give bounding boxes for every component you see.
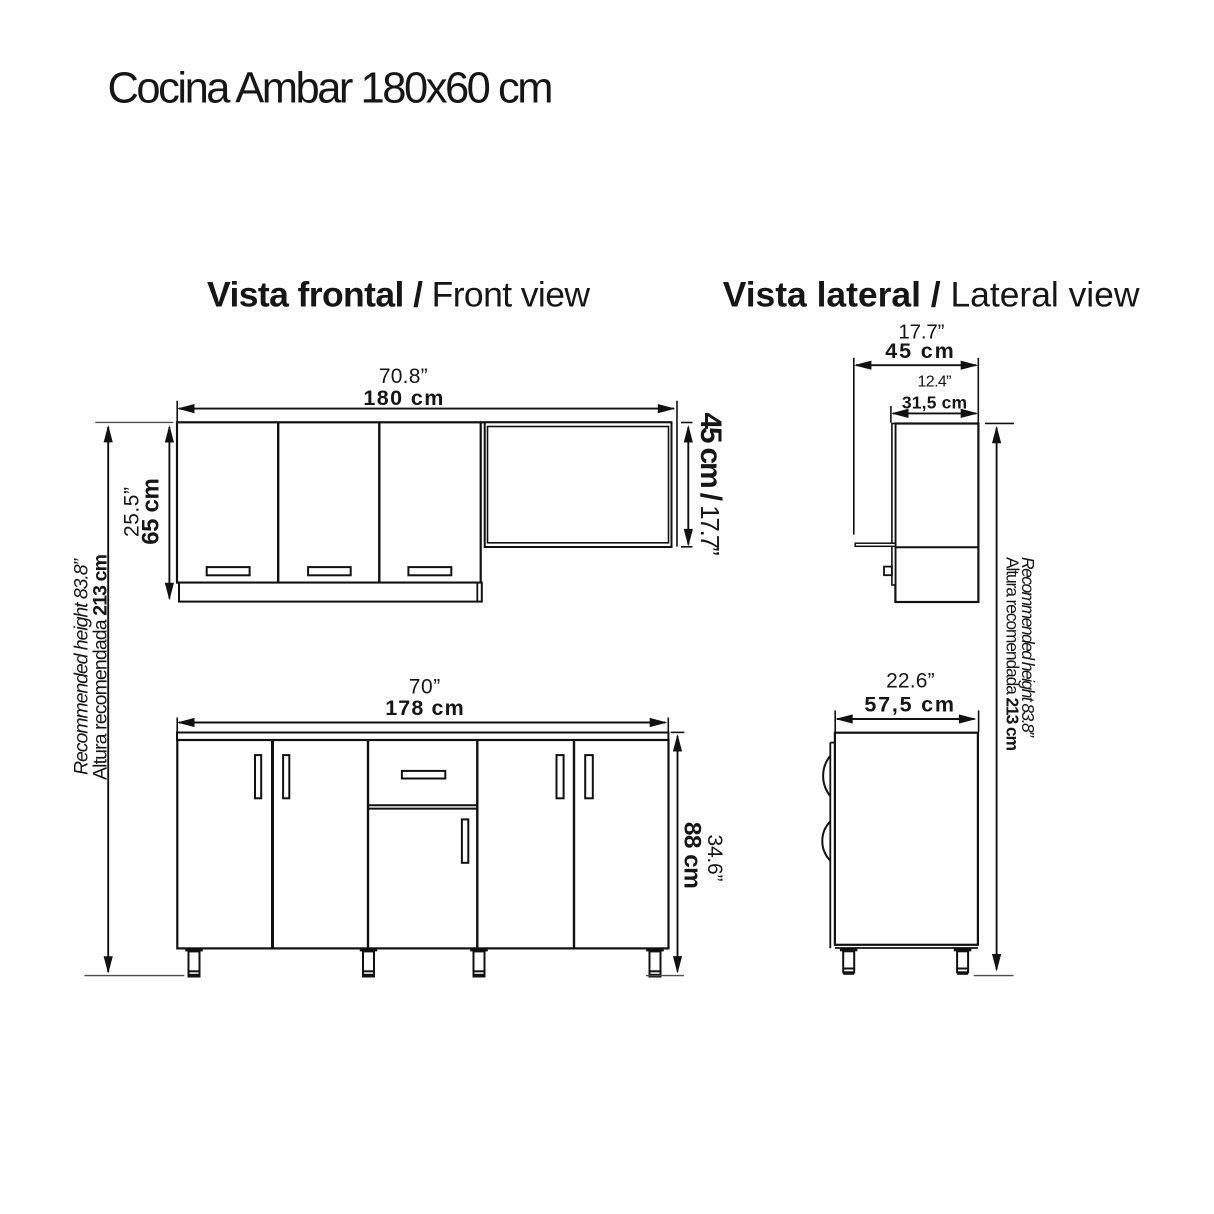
svg-text:Altura recomendada 213 cm: Altura recomendada 213 cm bbox=[1003, 557, 1023, 751]
svg-text:45 cm / 17.7”: 45 cm / 17.7” bbox=[694, 412, 727, 555]
svg-text:Altura recomendada 213 cm: Altura recomendada 213 cm bbox=[90, 554, 112, 780]
svg-text:Vista lateral / Lateral view: Vista lateral / Lateral view bbox=[723, 275, 1140, 315]
svg-text:88 cm: 88 cm bbox=[679, 822, 706, 889]
svg-text:22.6”: 22.6” bbox=[886, 670, 935, 693]
svg-text:70”: 70” bbox=[409, 675, 441, 698]
svg-text:Cocina Ambar 180x60 cm: Cocina Ambar 180x60 cm bbox=[108, 65, 554, 113]
svg-text:65 cm: 65 cm bbox=[138, 478, 165, 545]
svg-text:70.8”: 70.8” bbox=[379, 365, 428, 388]
svg-text:Vista frontal / Front view: Vista frontal / Front view bbox=[207, 275, 590, 315]
svg-text:31,5 cm: 31,5 cm bbox=[902, 392, 967, 412]
svg-text:57,5 cm: 57,5 cm bbox=[864, 692, 954, 716]
svg-text:12.4”: 12.4” bbox=[918, 374, 952, 391]
svg-text:178 cm: 178 cm bbox=[385, 696, 464, 720]
